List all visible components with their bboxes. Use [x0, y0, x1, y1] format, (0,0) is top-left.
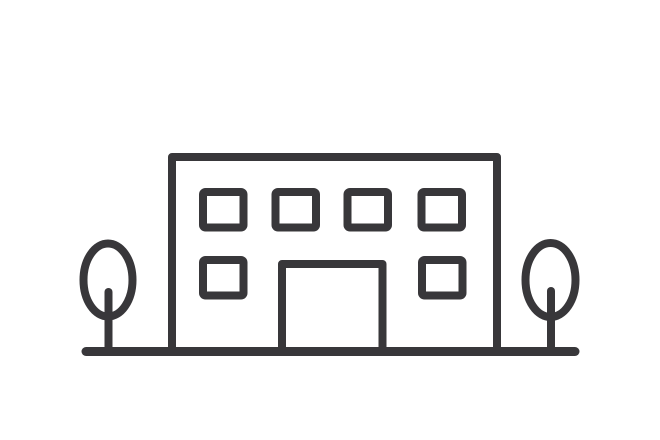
office-building-with-trees-icon [0, 0, 660, 440]
background [0, 0, 660, 440]
building-trees-illustration-canvas [0, 0, 660, 440]
